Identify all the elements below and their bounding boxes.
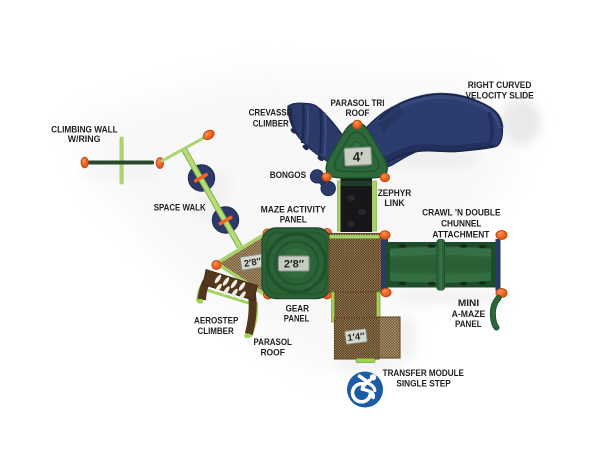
svg-text:W/RING: W/RING [68,133,101,144]
svg-text:RIGHT CURVED: RIGHT CURVED [468,79,532,90]
svg-text:ROOF: ROOF [346,107,370,118]
svg-text:ATTACHMENT: ATTACHMENT [432,229,489,240]
svg-text:PANEL: PANEL [280,214,307,225]
svg-text:A-MAZE: A-MAZE [452,308,486,319]
svg-text:SINGLE STEP: SINGLE STEP [396,378,450,389]
svg-text:LINK: LINK [384,197,405,208]
svg-text:SPACE WALK: SPACE WALK [154,202,206,213]
svg-text:MINI: MINI [458,297,479,308]
svg-text:PANEL: PANEL [284,312,310,323]
svg-text:CRAWL ’N DOUBLE: CRAWL ’N DOUBLE [422,206,500,217]
svg-text:TRANSFER MODULE: TRANSFER MODULE [383,367,464,378]
svg-text:PARASOL: PARASOL [253,336,292,347]
svg-text:1′4″: 1′4″ [347,331,366,344]
svg-text:ROOF: ROOF [260,347,285,358]
svg-text:VELOCITY SLIDE: VELOCITY SLIDE [465,90,533,101]
svg-text:CHUNNEL: CHUNNEL [441,217,482,228]
svg-text:2′8″: 2′8″ [284,259,305,271]
svg-text:CLIMBER: CLIMBER [198,325,234,336]
svg-text:4′: 4′ [352,149,364,165]
svg-text:AEROSTEP: AEROSTEP [194,315,238,326]
svg-text:PANEL: PANEL [455,318,482,329]
svg-text:BONGOS: BONGOS [270,169,306,180]
svg-text:CREVASSE: CREVASSE [249,107,292,118]
svg-text:CLIMBER: CLIMBER [253,117,289,128]
